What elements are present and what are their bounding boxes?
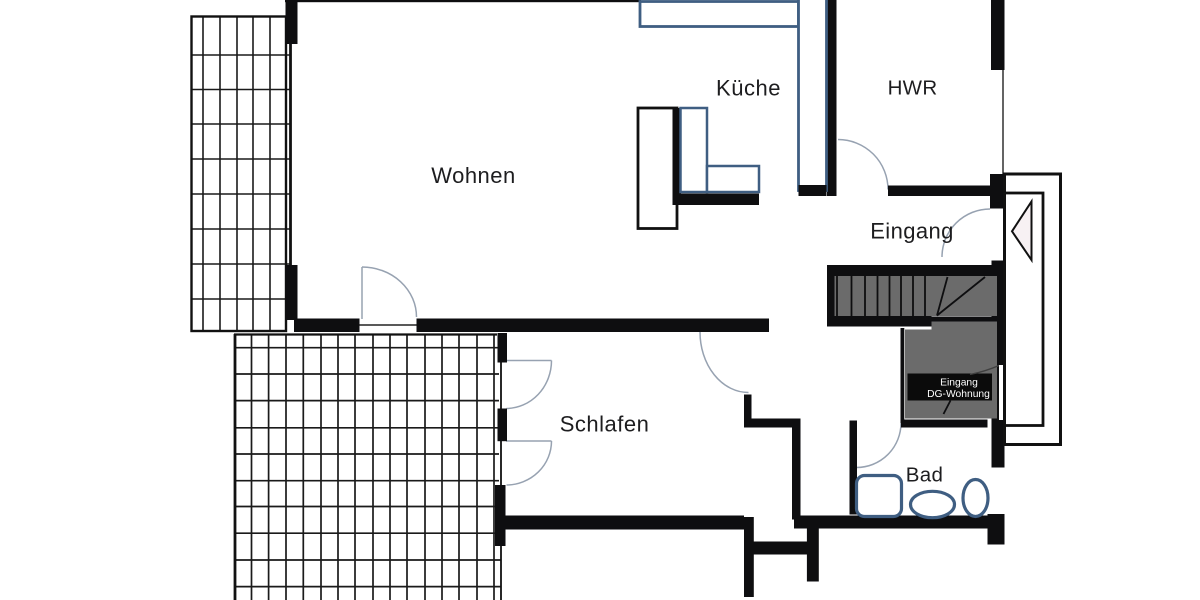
svg-text:Bad: Bad (906, 464, 943, 487)
svg-text:Schlafen: Schlafen (560, 412, 650, 437)
svg-text:Küche: Küche (716, 76, 781, 101)
svg-text:HWR: HWR (888, 77, 938, 100)
svg-text:Eingang: Eingang (940, 378, 978, 389)
svg-text:Wohnen: Wohnen (431, 163, 516, 188)
svg-text:Eingang: Eingang (870, 219, 954, 244)
svg-text:DG-Wohnung: DG-Wohnung (927, 389, 990, 400)
